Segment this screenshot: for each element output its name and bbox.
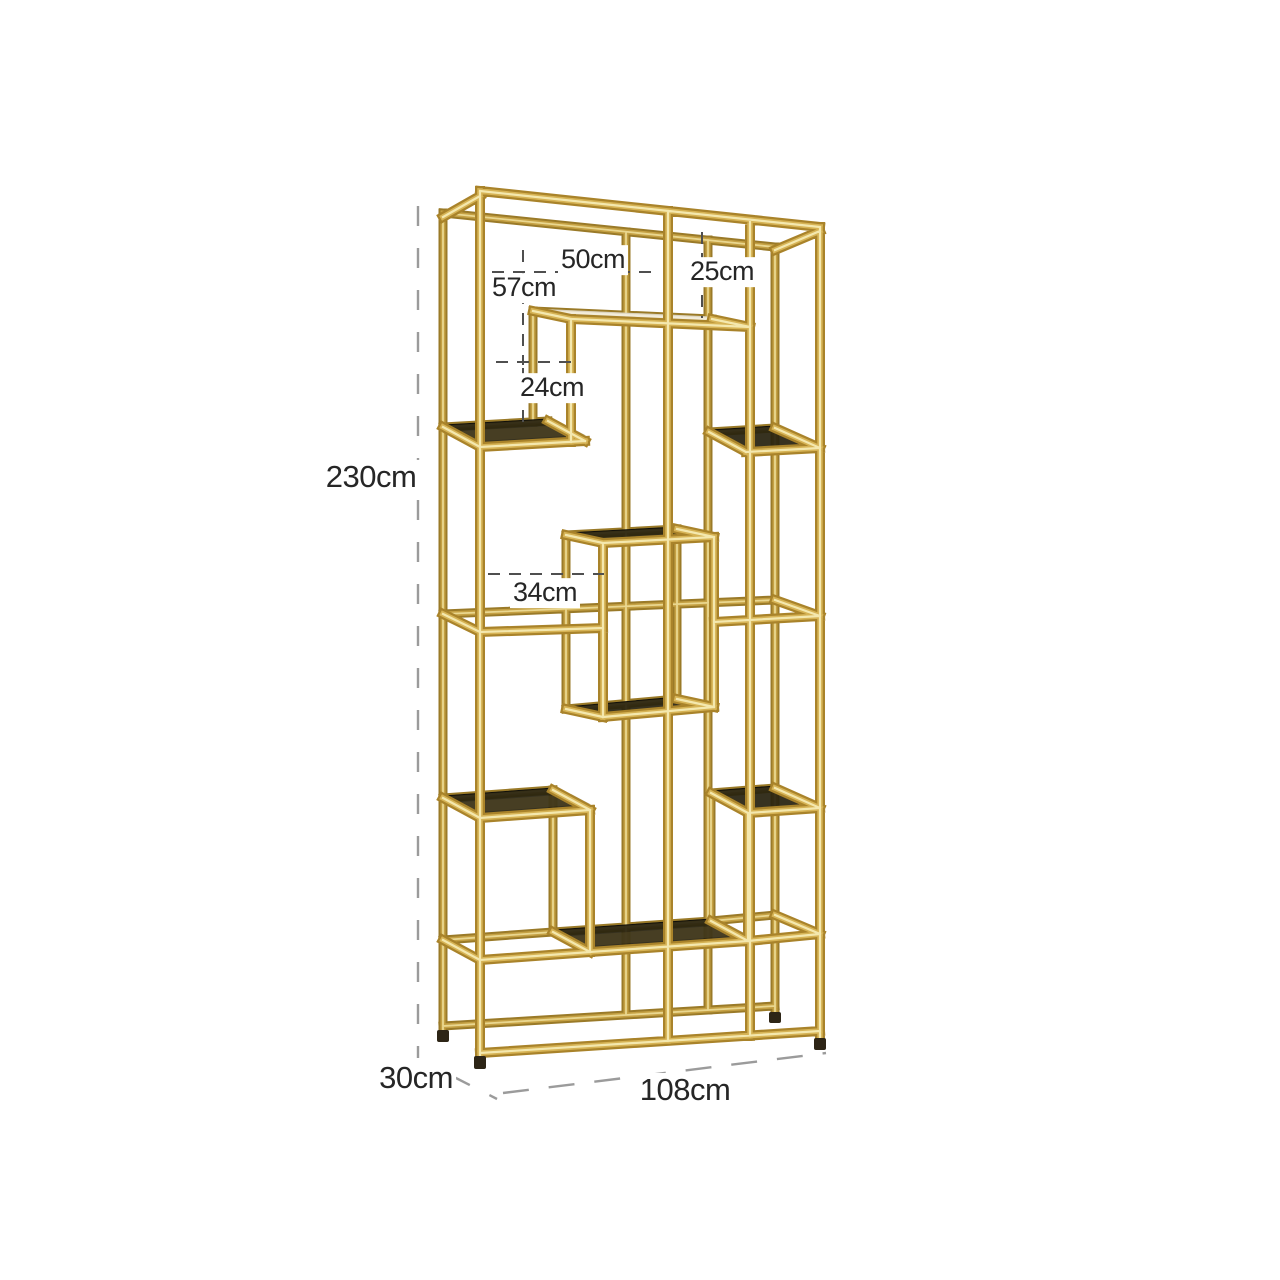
dim-label-depth-30: 30cm <box>376 1061 456 1095</box>
dim-label-top-drop-25: 25cm <box>687 257 757 287</box>
dim-label-shelf-gap-24: 24cm <box>517 373 587 403</box>
dim-label-inner-width-50: 50cm <box>558 245 628 275</box>
dim-label-width-108: 108cm <box>637 1073 734 1107</box>
depth-dimension-line <box>452 1076 497 1099</box>
dim-label-upper-section-57: 57cm <box>489 273 559 303</box>
product-dimension-diagram: 50cm 25cm 57cm 24cm 230cm 34cm 30cm 108c… <box>0 0 1280 1280</box>
dim-label-box-gap-34: 34cm <box>510 578 580 608</box>
dim-label-height-230: 230cm <box>323 460 420 494</box>
